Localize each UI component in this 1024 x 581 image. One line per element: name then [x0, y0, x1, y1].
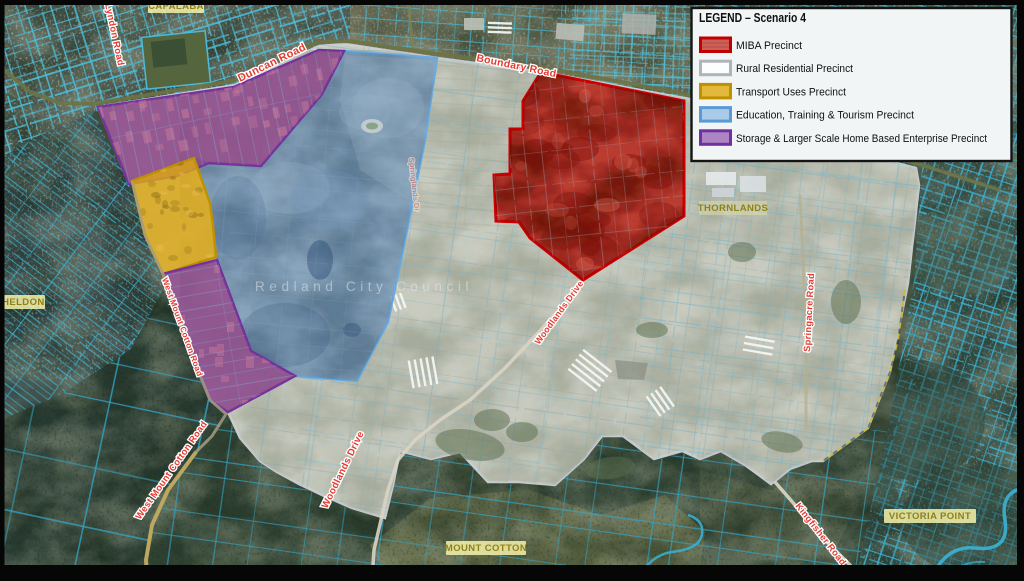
svg-text:THORNLANDS: THORNLANDS [698, 203, 769, 214]
svg-text:Storage & Larger Scale Home Ba: Storage & Larger Scale Home Based Enterp… [736, 133, 987, 145]
svg-text:VICTORIA POINT: VICTORIA POINT [889, 511, 971, 522]
svg-text:Transport Uses Precinct: Transport Uses Precinct [736, 86, 846, 98]
svg-text:Redland City Council: Redland City Council [255, 279, 473, 294]
svg-text:MIBA Precinct: MIBA Precinct [736, 40, 802, 52]
svg-text:Education, Training & Tourism: Education, Training & Tourism Precinct [736, 110, 914, 122]
svg-text:SHELDON: SHELDON [0, 297, 45, 308]
svg-text:MOUNT COTTON: MOUNT COTTON [445, 543, 527, 554]
svg-text:LEGEND – Scenario 4: LEGEND – Scenario 4 [699, 11, 806, 25]
svg-text:Rural Residential Precinct: Rural Residential Precinct [736, 63, 853, 75]
